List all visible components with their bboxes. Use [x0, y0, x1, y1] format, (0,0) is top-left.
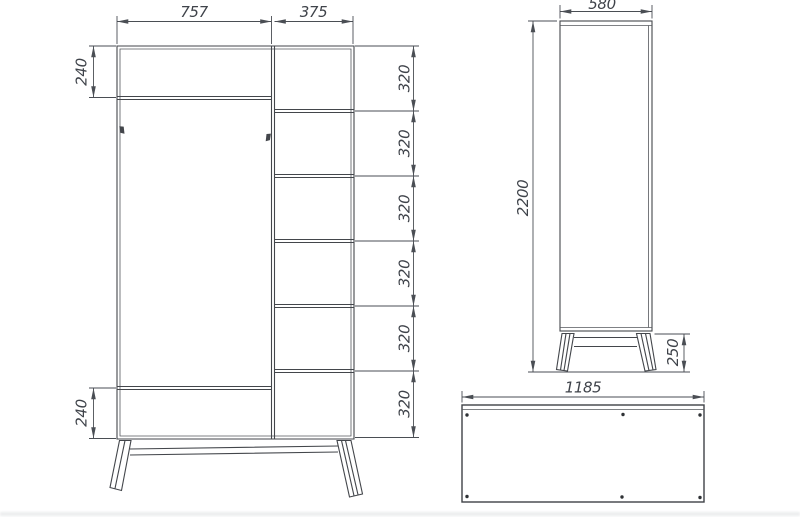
dim-shelf-6-label: 320: [395, 390, 413, 417]
front-legs: [110, 441, 363, 498]
fixing-dot: [698, 496, 701, 499]
side-dimensions: 580 2200 250: [514, 0, 690, 372]
dim-leg-height-label: 250: [664, 339, 682, 366]
top-dimensions: 1185: [462, 379, 704, 403]
front-view: [110, 46, 363, 497]
fixing-dot: [620, 495, 623, 498]
dim-top-width-label: 1185: [565, 379, 602, 397]
dim-bottom-panel-label: 240: [72, 399, 90, 426]
side-panel-inner-edges: [560, 26, 652, 328]
photo-edge-shadow: [0, 512, 800, 516]
dim-shelf-2-label: 320: [395, 130, 413, 157]
top-panel-fixing-dots: [465, 413, 701, 499]
front-shelf-lines: [275, 110, 355, 373]
wardrobe-technical-drawing: 757 375 240 240 320 320 320 320 320: [0, 0, 800, 517]
dim-shelf-1-label: 320: [395, 65, 413, 92]
technical-drawing-canvas: 757 375 240 240 320 320 320 320 320: [0, 0, 800, 517]
shelf-extension-lines: [355, 46, 419, 438]
fixing-dot: [621, 413, 624, 416]
fixing-dot: [698, 413, 701, 416]
dim-shelf-4-label: 320: [395, 260, 413, 287]
side-rear-leg: [637, 334, 657, 372]
dim-depth-label: 580: [588, 0, 615, 13]
height-extension-lines: [528, 21, 690, 372]
side-view: [557, 21, 657, 371]
top-panel-outline: [462, 405, 704, 502]
dim-shelf-3-label: 320: [395, 195, 413, 222]
top-view: [462, 405, 704, 502]
front-bottom-panel-line: [117, 387, 272, 390]
door-handle-right-icon: [266, 134, 271, 142]
fixing-dot: [465, 495, 468, 498]
side-body-outline: [560, 21, 652, 331]
dim-height-label: 2200: [514, 180, 532, 217]
side-front-leg: [557, 334, 575, 372]
shelf-segment-dimensions: 320 320 320 320 320 320: [395, 46, 413, 438]
front-dimensions: 757 375 240 240 320 320 320 320 320: [72, 3, 419, 439]
fixing-dot: [465, 413, 468, 416]
dim-shelf-5-label: 320: [395, 325, 413, 352]
front-door-divider: [272, 46, 275, 439]
front-left-leg: [110, 441, 131, 491]
dim-top-panel-label: 240: [72, 58, 90, 85]
front-top-panel-line: [117, 97, 272, 100]
side-legs: [557, 334, 657, 372]
front-right-leg: [337, 441, 363, 498]
front-leg-rail: [130, 446, 338, 455]
side-leg-rail: [574, 338, 637, 347]
dim-door-width-label: 757: [180, 3, 208, 21]
dim-shelf-column-width-label: 375: [300, 3, 327, 21]
